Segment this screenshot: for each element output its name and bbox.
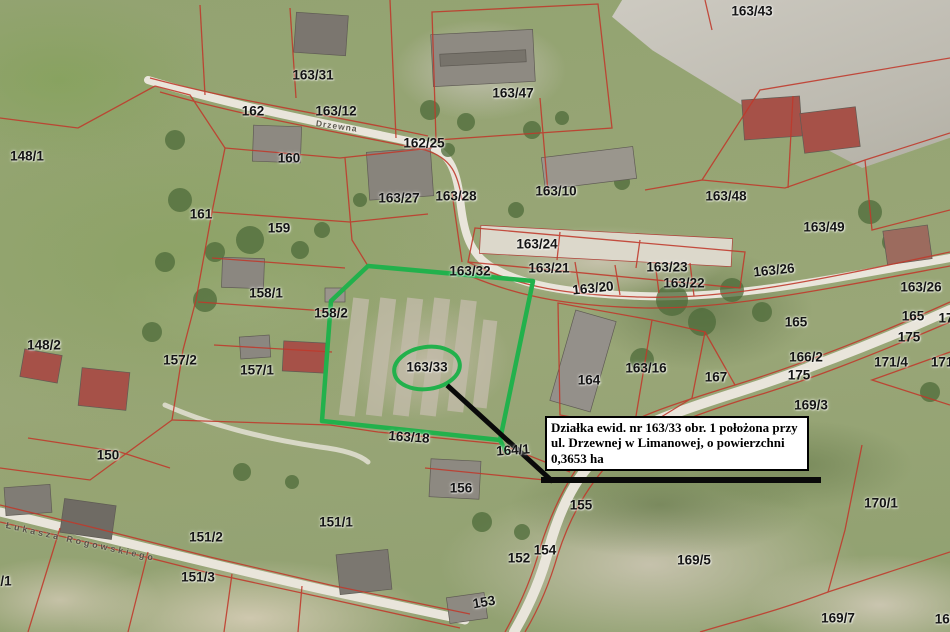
parcel-label: 158/1 (249, 286, 283, 301)
street-label: Łukasza Rogowskiego (5, 520, 157, 563)
parcel-label: 163/24 (516, 237, 557, 252)
parcel-label: 169 (935, 612, 950, 627)
parcel-label: 163/21 (528, 261, 569, 276)
parcel-label: 164/1 (496, 441, 531, 458)
parcel-label: /1 (0, 574, 11, 589)
parcel-label: 163/26 (900, 280, 941, 295)
parcel-label: 169/3 (794, 398, 828, 413)
parcel-label: 163/47 (492, 86, 533, 101)
parcel-label: 151/3 (181, 570, 215, 585)
parcel-label: 165 (902, 309, 925, 324)
parcel-label: 151/1 (319, 515, 353, 530)
map-canvas: 148/1163/31162163/12162/25163/47163/4316… (0, 0, 950, 632)
parcel-label: 17 (938, 311, 950, 326)
parcel-label: 151/2 (189, 530, 223, 545)
parcel-label: 156 (450, 481, 473, 496)
parcel-label: 153 (472, 593, 497, 612)
parcel-label: 163/43 (731, 4, 772, 19)
parcel-label: 155 (570, 498, 593, 513)
parcel-label: 163/18 (388, 428, 430, 446)
parcel-label: 166/2 (789, 350, 823, 365)
parcel-label: 169/5 (677, 553, 711, 568)
annotation-text: Działka ewid. nr 163/33 obr. 1 położona … (551, 420, 798, 466)
parcel-label: 157/2 (163, 353, 197, 368)
parcel-label: 171/4 (874, 355, 908, 370)
parcel-label: 175 (898, 330, 921, 345)
parcel-label: 170/1 (864, 496, 898, 511)
parcel-label: 163/32 (449, 264, 490, 279)
parcel-label: 163/23 (646, 260, 687, 275)
parcel-label: 175 (788, 368, 811, 383)
parcel-label: 163/27 (378, 191, 419, 206)
parcel-label: 165 (785, 315, 808, 330)
parcel-label: 159 (268, 221, 291, 236)
parcel-label: 163/26 (753, 260, 796, 279)
street-label: Drzewna (315, 118, 358, 134)
parcel-label: 161 (190, 207, 213, 222)
parcel-label: 169/7 (821, 611, 855, 626)
parcel-label: 163/22 (663, 276, 704, 291)
parcel-label: 162/25 (403, 136, 444, 151)
parcel-label: 150 (97, 448, 120, 463)
parcel-label: 163/16 (625, 361, 666, 376)
parcel-label: 163/48 (705, 189, 746, 204)
parcel-label: 163/12 (315, 104, 356, 119)
parcel-label: 160 (278, 151, 301, 166)
parcel-label: 163/20 (572, 278, 615, 297)
annotation-box: Działka ewid. nr 163/33 obr. 1 położona … (545, 416, 809, 471)
parcel-label: 162 (242, 104, 265, 119)
parcel-label: 154 (534, 543, 557, 558)
parcel-label: 171/ (931, 355, 950, 370)
parcel-label: 163/10 (535, 184, 576, 199)
parcel-label: 152 (508, 551, 531, 566)
labels-layer: 148/1163/31162163/12162/25163/47163/4316… (0, 0, 950, 632)
parcel-label: 163/28 (435, 189, 476, 204)
parcel-label: 148/2 (27, 338, 61, 353)
parcel-label: 164 (578, 373, 601, 388)
parcel-label: 167 (705, 370, 728, 385)
parcel-label: 163/33 (406, 360, 447, 375)
parcel-label: 163/49 (803, 220, 844, 235)
parcel-label: 148/1 (10, 149, 44, 164)
parcel-label: 157/1 (240, 363, 274, 378)
parcel-label: 158/2 (314, 306, 348, 321)
parcel-label: 163/31 (292, 68, 333, 83)
